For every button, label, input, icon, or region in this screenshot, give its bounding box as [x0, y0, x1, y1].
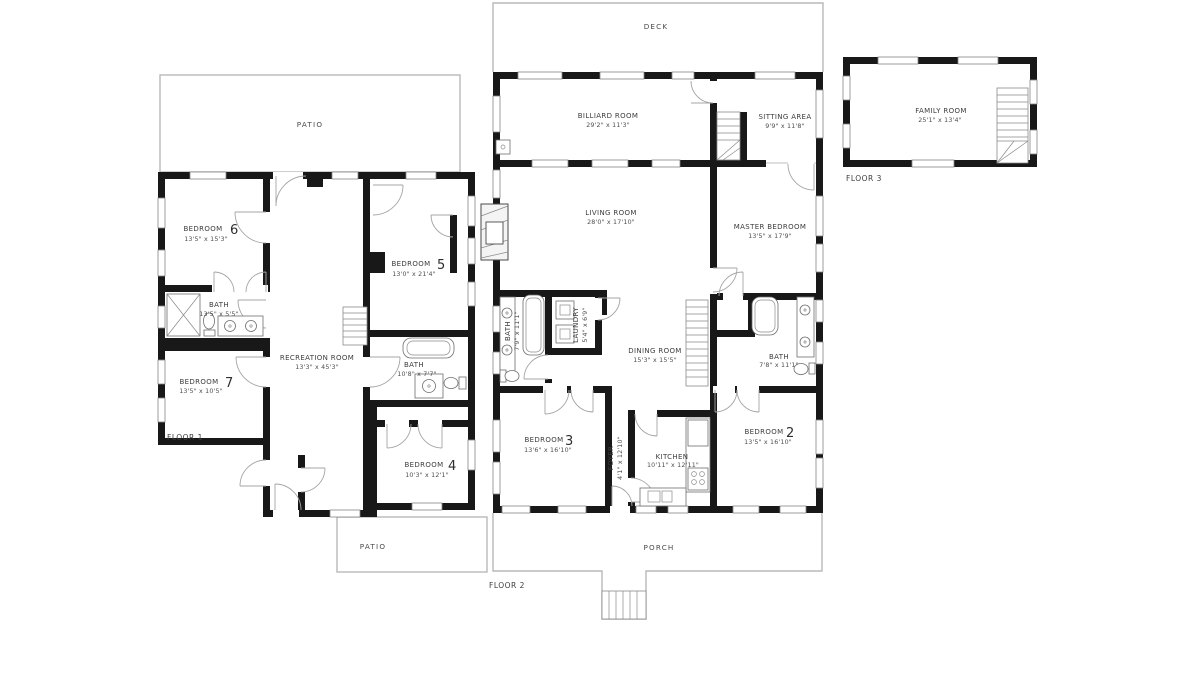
floor1-bath2-dims: 10'8" x 7'7": [397, 371, 436, 378]
floor1-bedroom7-name: BEDROOM: [180, 378, 219, 386]
floor2-bath1-dims: 7'9" x 11'1": [514, 311, 521, 350]
floor2-bath1-name: BATH: [504, 321, 512, 341]
floor2-bedroom3-name: BEDROOM: [525, 436, 564, 444]
floor2-billiard-dims: 29'2" x 11'3": [586, 122, 630, 129]
floor2-billiard-bar: [496, 140, 510, 154]
floor1-bedroom4-name: BEDROOM: [405, 461, 444, 469]
floor2-sitting-dims: 9'9" x 11'8": [765, 123, 804, 130]
floor2-fireplace: [481, 204, 508, 260]
floor3-family-dims: 25'1" x 13'4": [918, 117, 962, 124]
floor2-deck-label: DECK: [644, 22, 669, 31]
floor2-laundry-name: LAUNDRY: [572, 307, 580, 343]
floor2-deck-outline: [493, 3, 823, 72]
floor1-patio-bottom-label: PATIO: [360, 542, 386, 551]
floor1-bedroom5-dims: 13'0" x 21'4": [392, 271, 436, 278]
floor2-laundry-dims: 5'4" x 6'9": [582, 307, 589, 342]
floor1-bath1-dims: 13'5" x 5'5": [199, 311, 238, 318]
floor1-bath2-name: BATH: [404, 361, 424, 369]
floor3-stairs: [997, 88, 1028, 163]
floor2-stairs-main: [717, 112, 740, 160]
floor1-bedroom5-number: 5: [437, 258, 445, 273]
floor2-label: FLOOR 2: [489, 581, 525, 590]
floor2-kitchen-dims: 10'11" x 12'11": [647, 462, 699, 469]
floor2-billiard-name: BILLIARD ROOM: [578, 112, 638, 120]
floorplan-canvas: PATIO BEDROOM 6 13'5" x 15'3" BEDROOM 5 …: [0, 0, 1200, 675]
floor2-porch-steps: [602, 591, 646, 619]
floor1-bedroom7-dims: 13'5" x 10'5": [179, 388, 223, 395]
floor2-stairs-dining: [686, 300, 708, 386]
floor2-master-name: MASTER BEDROOM: [734, 223, 807, 231]
floor2-foyer-dims: 4'1" x 12'10": [617, 436, 624, 480]
floor1-bath1-name: BATH: [209, 301, 229, 309]
floor-1: PATIO BEDROOM 6 13'5" x 15'3" BEDROOM 5 …: [158, 75, 487, 572]
floor2-bath2-dims: 7'8" x 11'1": [759, 362, 798, 369]
floor2-bedroom2-dims: 13'5" x 16'10": [744, 439, 792, 446]
floor1-bedroom4-number: 4: [448, 459, 456, 474]
floor1-bedroom6-dims: 13'5" x 15'3": [184, 236, 228, 243]
floor1-recreation-name: RECREATION ROOM: [280, 354, 354, 362]
floor3-label: FLOOR 3: [846, 174, 882, 183]
floor2-living-name: LIVING ROOM: [585, 209, 636, 217]
floor2-bath2-name: BATH: [769, 353, 789, 361]
floor3-family-name: FAMILY ROOM: [915, 107, 967, 115]
floor-3: FAMILY ROOM 25'1" x 13'4" FLOOR 3: [843, 57, 1037, 183]
floor1-label: FLOOR 1: [167, 433, 203, 442]
floor1-patio-top-label: PATIO: [297, 120, 323, 129]
floor1-bedroom6-name: BEDROOM: [184, 225, 223, 233]
floor2-porch-label: PORCH: [643, 543, 674, 552]
floor1-bedroom5-name: BEDROOM: [392, 260, 431, 268]
floor2-sitting-name: SITTING AREA: [759, 113, 812, 121]
floor3-labels: FAMILY ROOM 25'1" x 13'4" FLOOR 3: [846, 107, 967, 183]
floor2-porch-outline: [493, 513, 822, 619]
floor2-living-dims: 28'0" x 17'10": [587, 219, 635, 226]
floor-2: DECK BILLIARD ROOM 29'2" x 11'3" SITTING…: [481, 3, 823, 619]
floor2-bedroom2-name: BEDROOM: [745, 428, 784, 436]
floor2-master-dims: 13'5" x 17'9": [748, 233, 792, 240]
floor1-bedroom4-dims: 10'3" x 12'1": [405, 472, 449, 479]
floor1-stairs: [343, 307, 367, 345]
floor2-bedroom3-dims: 13'6" x 16'10": [524, 447, 572, 454]
floor2-foyer-name: FOYER: [607, 446, 615, 470]
floorplan-page: PATIO BEDROOM 6 13'5" x 15'3" BEDROOM 5 …: [0, 0, 1200, 675]
floor1-bedroom6-number: 6: [230, 223, 238, 238]
floor2-kitchen-name: KITCHEN: [656, 453, 689, 461]
floor1-bedroom7-number: 7: [225, 376, 233, 391]
floor1-recreation-dims: 13'3" x 45'3": [295, 364, 339, 371]
floor2-dining-dims: 15'3" x 15'5": [633, 357, 677, 364]
floor2-dining-name: DINING ROOM: [628, 347, 681, 355]
